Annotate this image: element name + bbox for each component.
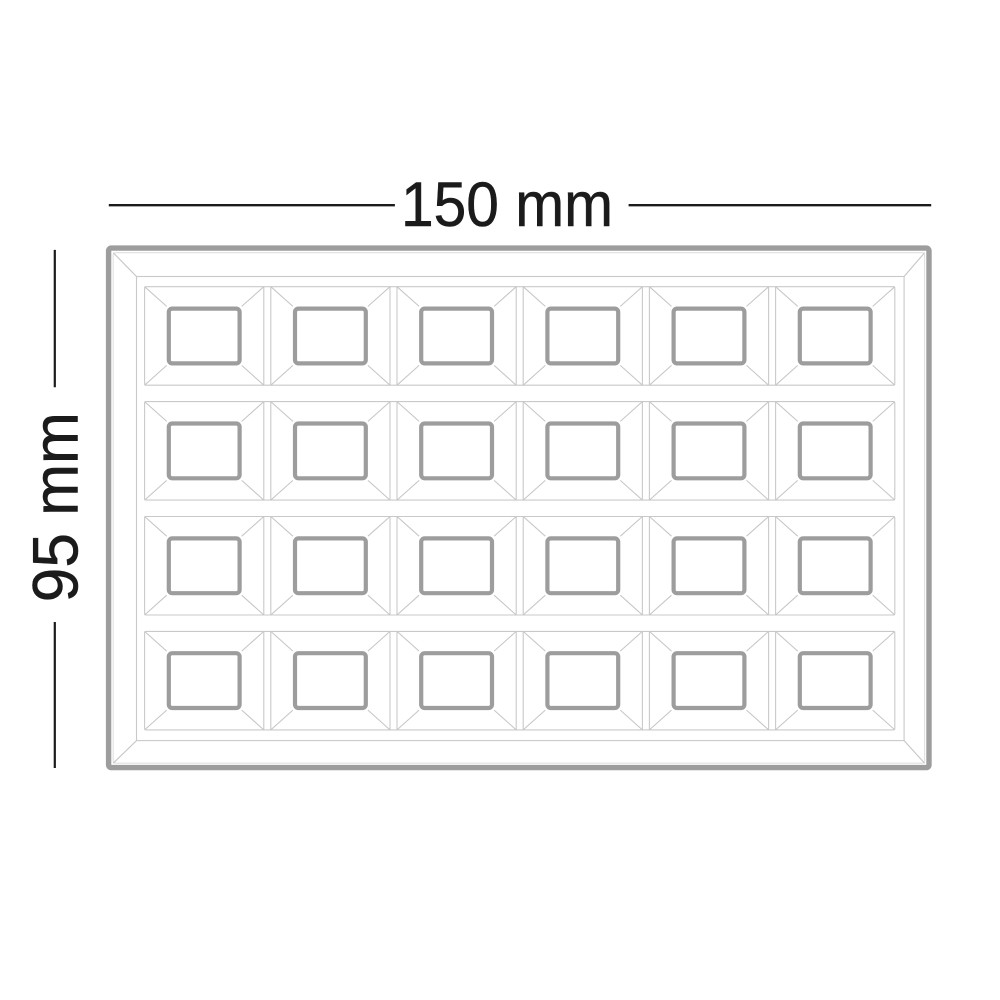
svg-text:95 mm: 95 mm <box>20 412 92 602</box>
svg-text:150 mm: 150 mm <box>401 170 613 240</box>
